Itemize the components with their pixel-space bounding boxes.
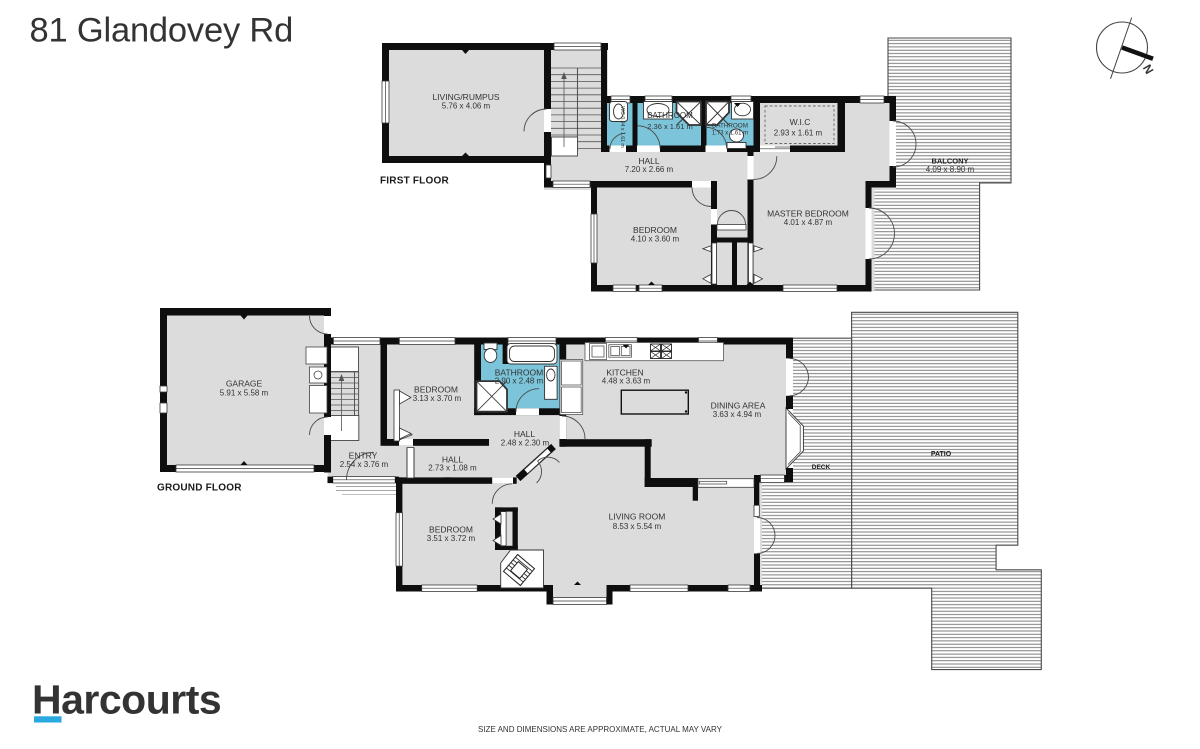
svg-text:1.73 x 1.61 m: 1.73 x 1.61 m (712, 131, 748, 137)
svg-text:4.09 x 8.90 m: 4.09 x 8.90 m (926, 165, 975, 174)
svg-text:BEDROOM: BEDROOM (633, 225, 677, 235)
svg-text:5.91 x 5.58 m: 5.91 x 5.58 m (220, 389, 269, 398)
svg-text:81 Glandovey Rd: 81 Glandovey Rd (30, 12, 294, 50)
svg-text:2.73 x 1.08 m: 2.73 x 1.08 m (428, 464, 477, 473)
svg-text:N: N (1140, 62, 1156, 77)
svg-text:HALL: HALL (514, 429, 536, 439)
svg-text:WC 0.94 x 1.61 m: WC 0.94 x 1.61 m (619, 106, 625, 148)
svg-text:W.I.C: W.I.C (790, 117, 811, 127)
svg-text:GARAGE: GARAGE (226, 379, 263, 389)
svg-text:FIRST FLOOR: FIRST FLOOR (380, 176, 449, 187)
svg-text:8.53 x 5.54 m: 8.53 x 5.54 m (613, 522, 662, 531)
svg-text:2.93 x 1.61 m: 2.93 x 1.61 m (774, 129, 823, 138)
svg-text:4.01 x 4.87 m: 4.01 x 4.87 m (784, 218, 833, 227)
svg-text:LIVING/RUMPUS: LIVING/RUMPUS (432, 92, 499, 102)
svg-text:3.63 x 4.94 m: 3.63 x 4.94 m (713, 410, 762, 419)
svg-text:BEDROOM: BEDROOM (429, 525, 473, 535)
svg-text:3.13 x 3.70 m: 3.13 x 3.70 m (413, 394, 462, 403)
svg-text:MASTER BEDROOM: MASTER BEDROOM (767, 209, 849, 219)
svg-text:LIVING ROOM: LIVING ROOM (609, 512, 666, 522)
svg-text:BEDROOM: BEDROOM (414, 385, 458, 395)
svg-text:DECK: DECK (812, 464, 831, 471)
svg-text:BATHROOM: BATHROOM (712, 123, 748, 130)
svg-text:2.90 x 2.48 m: 2.90 x 2.48 m (495, 377, 544, 386)
svg-text:BATHROOM: BATHROOM (647, 111, 693, 120)
svg-text:GROUND FLOOR: GROUND FLOOR (157, 483, 242, 494)
svg-text:3.51 x 3.72 m: 3.51 x 3.72 m (427, 534, 476, 543)
svg-text:DINING AREA: DINING AREA (711, 401, 766, 411)
svg-text:2.36 x 1.61 m: 2.36 x 1.61 m (647, 122, 692, 131)
svg-text:ENTRY: ENTRY (349, 451, 378, 461)
svg-text:4.10 x 3.60 m: 4.10 x 3.60 m (631, 235, 680, 244)
svg-text:2.54 x 3.76 m: 2.54 x 3.76 m (340, 460, 389, 469)
svg-text:5.76 x 4.06 m: 5.76 x 4.06 m (442, 102, 491, 111)
svg-text:7.20 x 2.66 m: 7.20 x 2.66 m (625, 165, 674, 174)
svg-text:2.48 x 2.30 m: 2.48 x 2.30 m (501, 439, 550, 448)
svg-text:PATIO: PATIO (931, 451, 952, 458)
svg-text:SIZE AND DIMENSIONS ARE APPROX: SIZE AND DIMENSIONS ARE APPROXIMATE, ACT… (478, 725, 723, 734)
svg-text:Harcourts: Harcourts (32, 677, 221, 723)
svg-text:4.48 x 3.63 m: 4.48 x 3.63 m (602, 377, 651, 386)
